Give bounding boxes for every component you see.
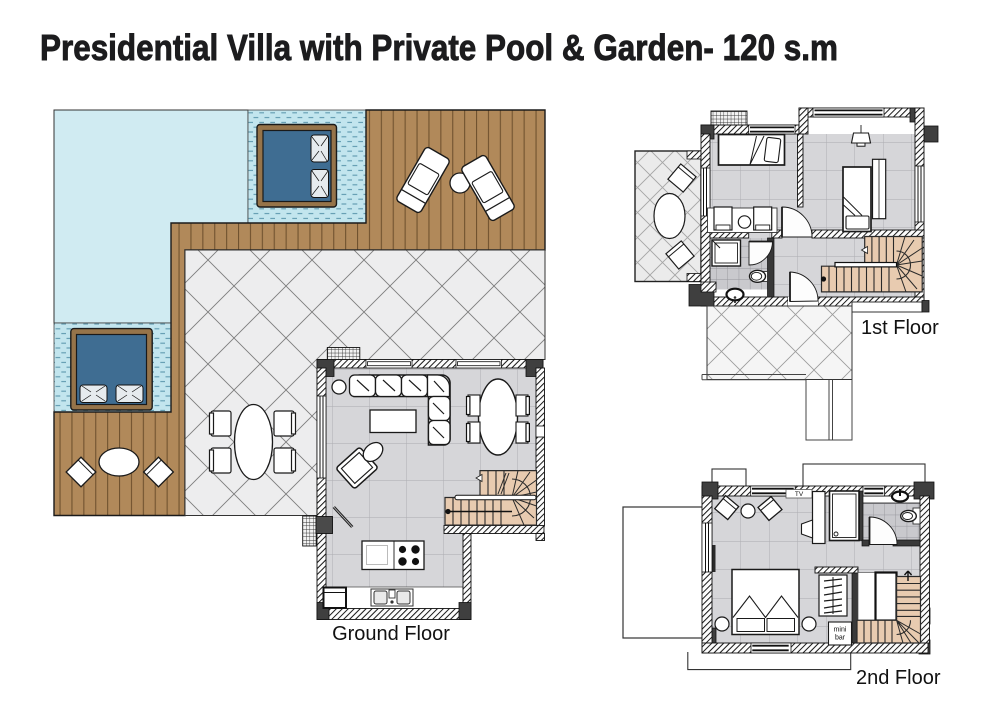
svg-text:1st Floor: 1st Floor <box>861 317 939 339</box>
svg-text:Ground Floor: Ground Floor <box>332 623 450 645</box>
svg-text:TV: TV <box>795 491 804 498</box>
svg-text:bar: bar <box>835 635 846 642</box>
svg-text:mini: mini <box>834 627 847 634</box>
svg-text:2nd Floor: 2nd Floor <box>856 667 941 689</box>
svg-text:Presidential Villa with Privat: Presidential Villa with Private Pool & G… <box>40 27 838 68</box>
